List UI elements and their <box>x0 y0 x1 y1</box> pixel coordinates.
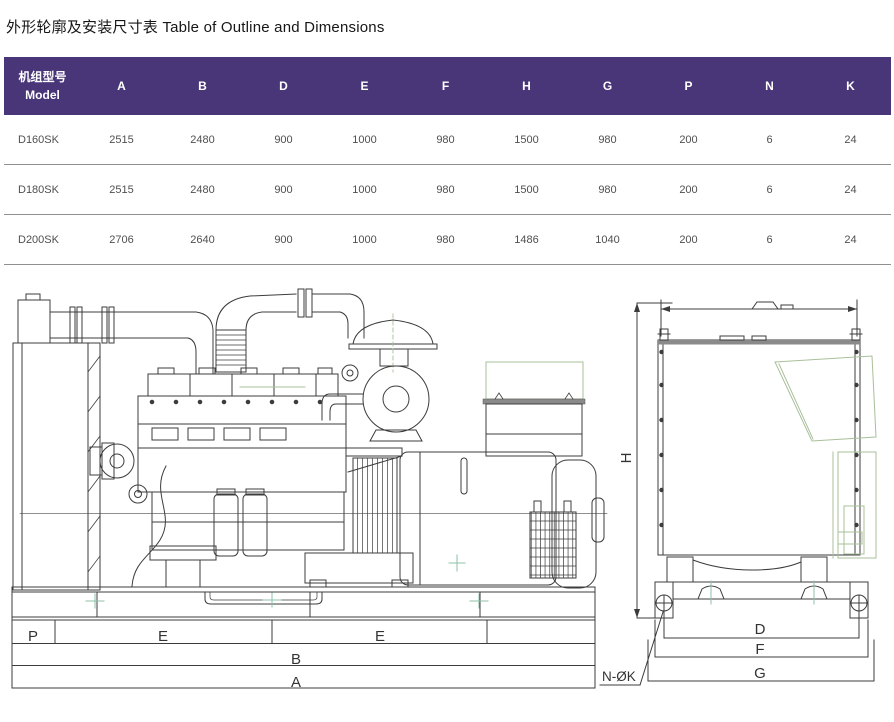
bolt-hole-callout: N-ØK <box>600 612 663 685</box>
dim-value: 1500 <box>486 115 567 165</box>
dim-label-a: A <box>291 674 301 691</box>
header-cell-H: H <box>486 57 567 115</box>
dim-value: 6 <box>729 215 810 265</box>
dim-value: 980 <box>405 215 486 265</box>
outline-drawings: P E E B A <box>0 275 894 722</box>
header-cell-K: K <box>810 57 891 115</box>
dim-value: 900 <box>243 215 324 265</box>
dim-value: 1000 <box>324 215 405 265</box>
height-dimension <box>634 303 672 618</box>
fan-duct-grille <box>346 448 402 553</box>
charge-air-pipe <box>50 307 213 374</box>
datasheet-page: { "title": "外形轮廓及安装尺寸表 Table of Outline … <box>0 0 894 722</box>
dim-value: 980 <box>567 165 648 215</box>
table-row: D200SK 2706 2640 900 1000 980 1486 1040 … <box>4 215 891 265</box>
header-cell-P: P <box>648 57 729 115</box>
page-title: 外形轮廓及安装尺寸表 Table of Outline and Dimensio… <box>6 16 385 37</box>
header-model-en: Model <box>4 86 81 104</box>
end-view-dimension-labels: D F G H <box>618 453 766 682</box>
dim-label-b: B <box>291 651 301 668</box>
dim-value: 900 <box>243 115 324 165</box>
table-row: D180SK 2515 2480 900 1000 980 1500 980 2… <box>4 165 891 215</box>
header-model-zh: 机组型号 <box>4 68 81 86</box>
dim-value: 1486 <box>486 215 567 265</box>
header-cell-G: G <box>567 57 648 115</box>
canopy-green-components <box>775 356 876 558</box>
dim-value: 24 <box>810 165 891 215</box>
side-view-dimension-labels: P E E B A <box>28 628 385 691</box>
model-name: D160SK <box>4 115 81 165</box>
dim-value: 1500 <box>486 165 567 215</box>
dim-value: 900 <box>243 165 324 215</box>
dim-value: 200 <box>648 115 729 165</box>
bolt-callout-label: N-ØK <box>602 669 636 684</box>
dim-value: 1040 <box>567 215 648 265</box>
header-cell-D: D <box>243 57 324 115</box>
header-cell-model: 机组型号 Model <box>4 57 81 115</box>
dim-value: 2706 <box>81 215 162 265</box>
dim-value: 2640 <box>162 215 243 265</box>
dim-value: 2480 <box>162 165 243 215</box>
header-cell-B: B <box>162 57 243 115</box>
dim-value: 980 <box>405 115 486 165</box>
dim-value: 24 <box>810 115 891 165</box>
dim-label-g: G <box>754 665 766 682</box>
dim-label-f: F <box>755 641 764 658</box>
control-box <box>483 362 585 456</box>
dim-value: 980 <box>567 115 648 165</box>
model-name: D200SK <box>4 215 81 265</box>
dimensions-table: 机组型号 Model A B D E F H G P N K D160SK 25… <box>4 57 891 265</box>
dim-value: 980 <box>405 165 486 215</box>
side-view-dimensions <box>12 617 595 688</box>
dim-value: 200 <box>648 215 729 265</box>
dim-value: 1000 <box>324 115 405 165</box>
dim-label-p: P <box>28 628 38 645</box>
header-cell-N: N <box>729 57 810 115</box>
genset-side-view-drawing: P E E B A <box>12 289 607 691</box>
dim-value: 1000 <box>324 165 405 215</box>
header-cell-F: F <box>405 57 486 115</box>
dim-value: 6 <box>729 165 810 215</box>
base-frame <box>12 587 595 617</box>
genset-end-view-drawing: D F G H N-ØK <box>600 300 876 685</box>
dim-label-e2: E <box>375 628 385 645</box>
exhaust-piping <box>216 289 364 372</box>
air-filter-rain-cap <box>349 314 437 372</box>
header-cell-E: E <box>324 57 405 115</box>
dim-label-e1: E <box>158 628 168 645</box>
dim-value: 6 <box>729 115 810 165</box>
model-name: D180SK <box>4 165 81 215</box>
table-row: D160SK 2515 2480 900 1000 980 1500 980 2… <box>4 115 891 165</box>
base-feet-and-isolators <box>655 557 868 618</box>
canopy-front-frame <box>658 329 862 555</box>
header-cell-A: A <box>81 57 162 115</box>
dim-value: 2515 <box>81 115 162 165</box>
dim-value: 2480 <box>162 115 243 165</box>
alternator <box>305 452 604 588</box>
dim-value: 24 <box>810 215 891 265</box>
dim-label-d: D <box>755 621 766 638</box>
table-header-row: 机组型号 Model A B D E F H G P N K <box>4 57 891 115</box>
engine-block <box>90 368 346 587</box>
dim-value: 2515 <box>81 165 162 215</box>
top-width-dimension <box>661 300 857 336</box>
dim-label-h: H <box>618 453 635 464</box>
dim-value: 200 <box>648 165 729 215</box>
